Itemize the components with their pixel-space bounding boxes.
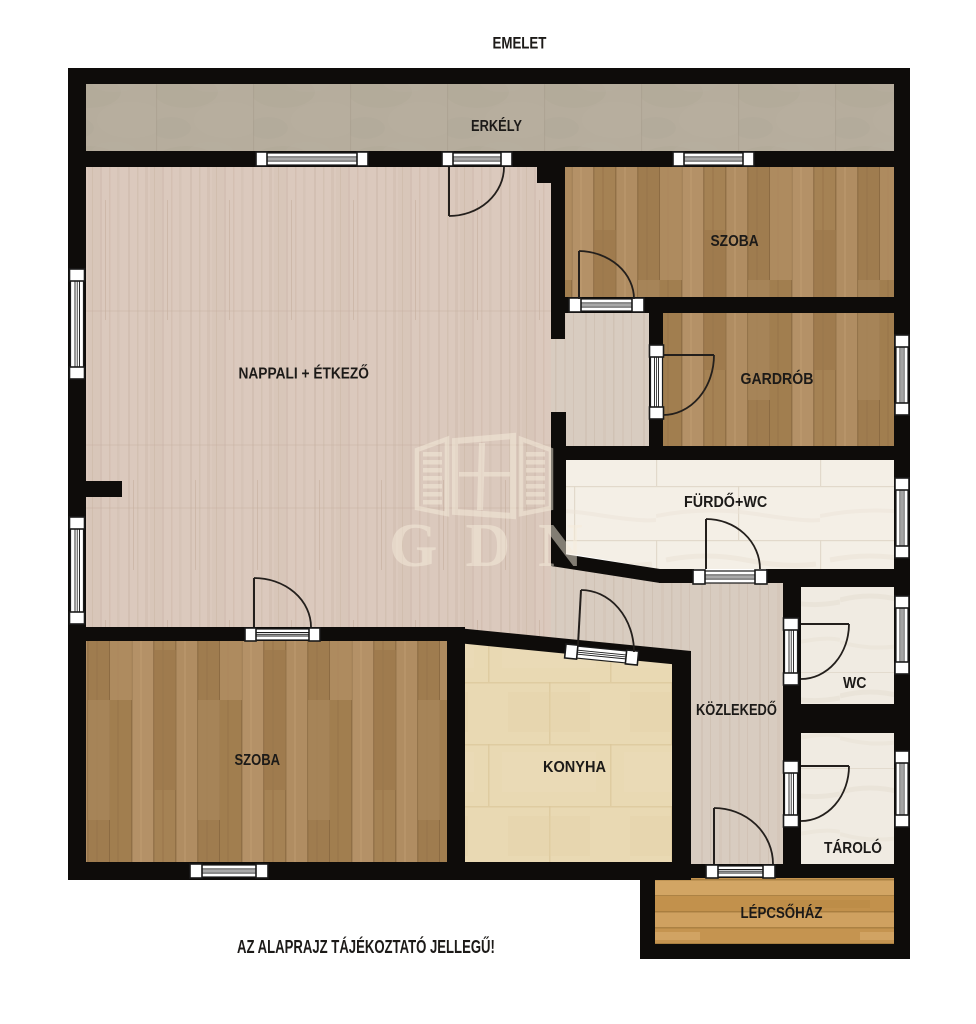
svg-text:AZ ALAPRAJZ TÁJÉKOZTATÓ JELLEG: AZ ALAPRAJZ TÁJÉKOZTATÓ JELLEGŰ! (237, 936, 495, 958)
svg-text:KÖZLEKEDŐ: KÖZLEKEDŐ (696, 700, 777, 720)
svg-text:WC: WC (843, 674, 867, 692)
svg-text:KONYHA: KONYHA (543, 758, 606, 776)
svg-text:FÜRDŐ+WC: FÜRDŐ+WC (684, 492, 767, 511)
svg-text:GARDRÓB: GARDRÓB (741, 369, 814, 388)
svg-text:SZOBA: SZOBA (235, 752, 281, 770)
svg-text:TÁROLÓ: TÁROLÓ (824, 838, 882, 857)
svg-text:SZOBA: SZOBA (711, 232, 759, 250)
svg-text:GDN: GDN (389, 512, 611, 580)
svg-text:ERKÉLY: ERKÉLY (471, 117, 522, 136)
svg-text:LÉPCSŐHÁZ: LÉPCSŐHÁZ (741, 903, 823, 923)
svg-text:NAPPALI + ÉTKEZŐ: NAPPALI + ÉTKEZŐ (239, 364, 369, 383)
svg-text:EMELET: EMELET (493, 34, 548, 53)
